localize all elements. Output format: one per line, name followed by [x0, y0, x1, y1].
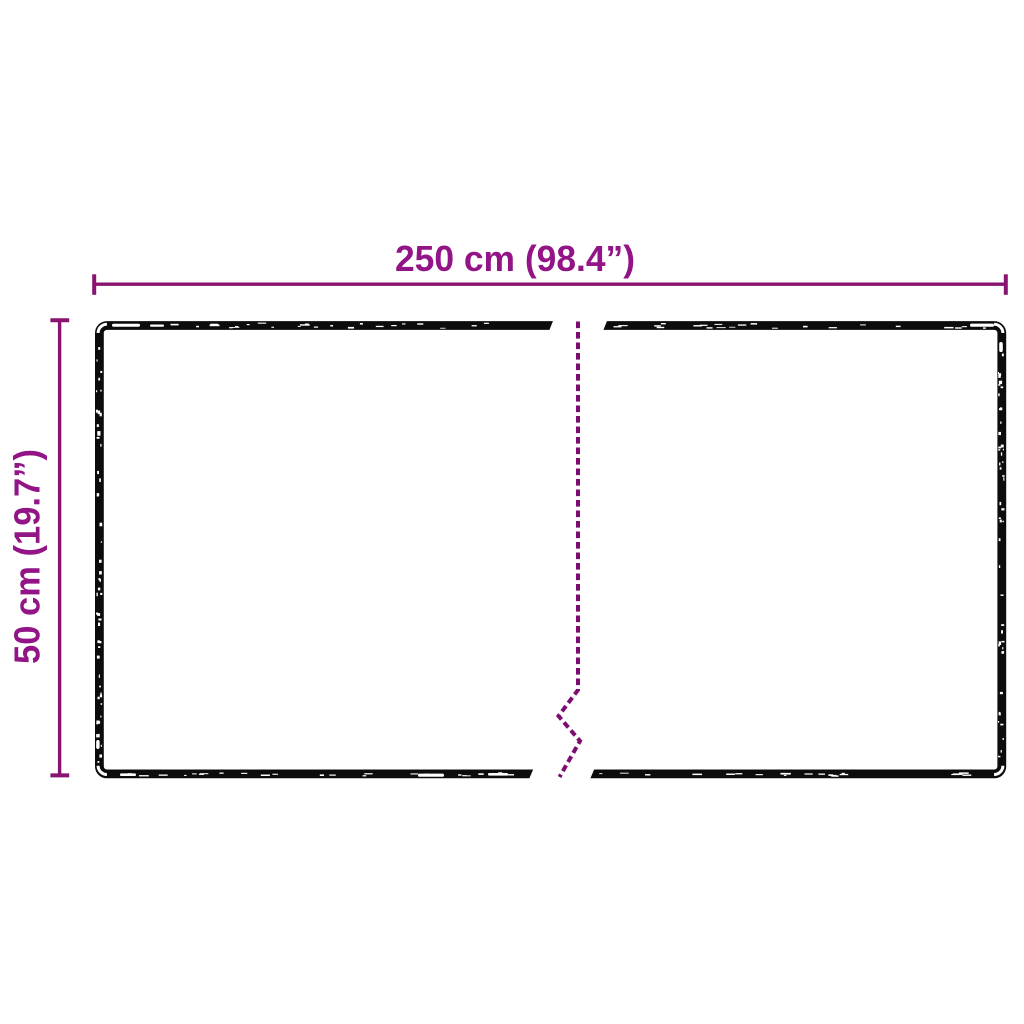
svg-text:250 cm (98.4”): 250 cm (98.4”): [395, 238, 635, 279]
svg-text:50 cm (19.7”): 50 cm (19.7”): [7, 449, 48, 664]
